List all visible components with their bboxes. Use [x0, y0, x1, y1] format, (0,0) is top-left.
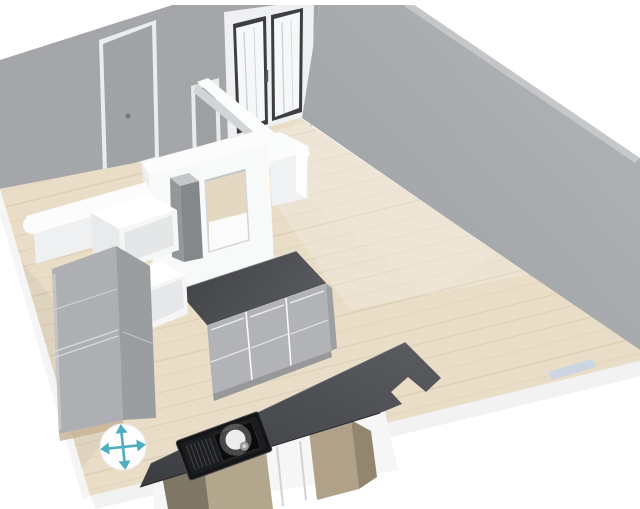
column-side: [180, 181, 203, 262]
canvas-margin: [0, 0, 640, 5]
tall-cabinet-side: [116, 246, 156, 420]
door-knob: [126, 114, 131, 119]
tall-cabinet[interactable]: [52, 246, 156, 441]
interior-door-leaf: [103, 25, 155, 171]
interior-door[interactable]: [99, 20, 159, 175]
planner-3d-viewport: [0, 0, 640, 509]
pony-wall-end-face: [296, 144, 308, 198]
pony-wall-rounded-end: [23, 216, 41, 234]
pane-right-glass: [274, 12, 300, 117]
partition-window[interactable]: [205, 170, 249, 252]
